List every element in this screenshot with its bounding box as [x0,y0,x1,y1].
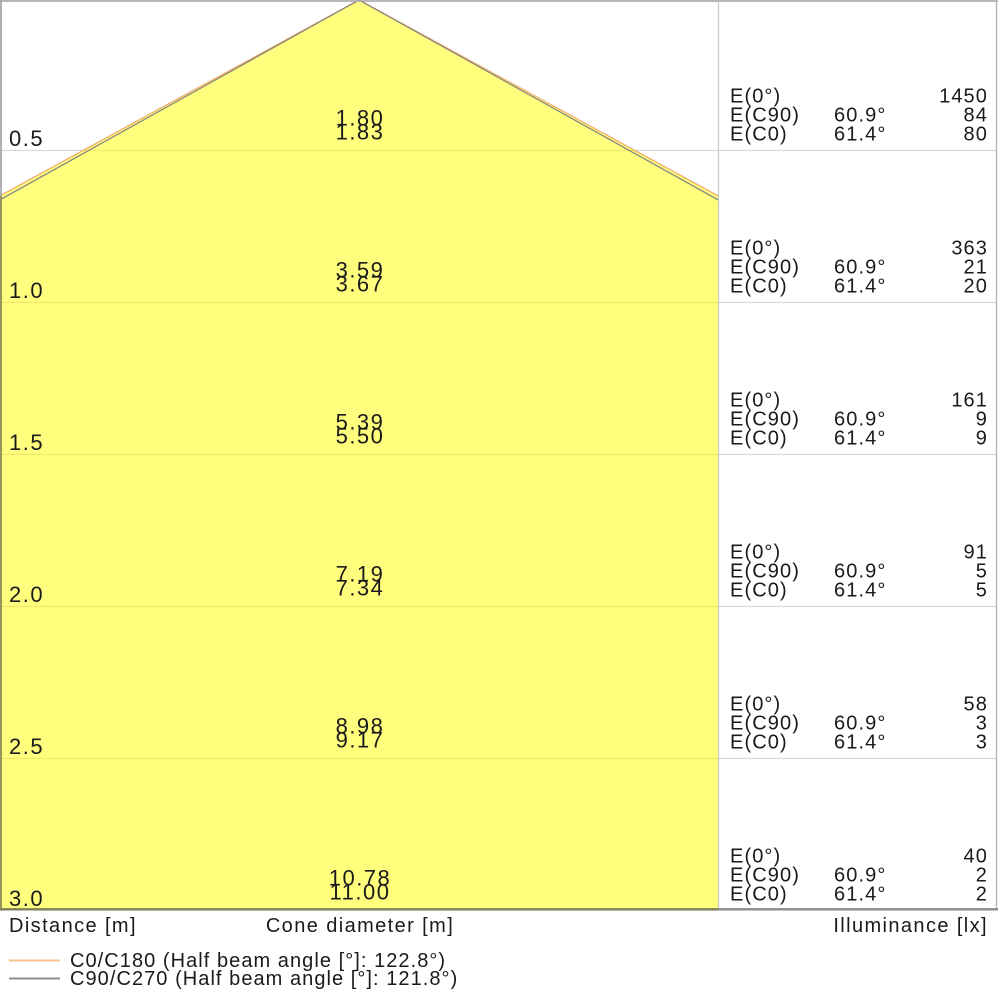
svg-text:20: 20 [964,276,988,298]
svg-text:61.4°: 61.4° [834,884,886,906]
svg-text:E(C0): E(C0) [730,884,788,906]
svg-text:61.4°: 61.4° [834,276,886,298]
svg-text:9.17: 9.17 [336,728,385,753]
svg-text:7.34: 7.34 [336,576,385,601]
svg-text:E(C0): E(C0) [730,732,788,754]
svg-text:11.00: 11.00 [330,880,391,905]
svg-text:3.0: 3.0 [9,886,44,911]
svg-text:61.4°: 61.4° [834,580,886,602]
svg-text:E(C0): E(C0) [730,580,788,602]
svg-text:1.0: 1.0 [9,278,44,303]
svg-text:E(C0): E(C0) [730,124,788,146]
svg-text:E(C0): E(C0) [730,428,788,450]
svg-text:9: 9 [976,428,988,450]
svg-text:2.0: 2.0 [9,582,44,607]
svg-text:61.4°: 61.4° [834,732,886,754]
svg-text:Cone diameter [m]: Cone diameter [m] [266,915,454,937]
svg-text:61.4°: 61.4° [834,428,886,450]
svg-text:3.67: 3.67 [336,272,385,297]
svg-text:2: 2 [976,884,988,906]
svg-text:1.5: 1.5 [9,430,44,455]
svg-text:0.5: 0.5 [9,126,44,151]
svg-text:Distance [m]: Distance [m] [9,915,137,937]
svg-text:61.4°: 61.4° [834,124,886,146]
svg-text:2.5: 2.5 [9,734,44,759]
svg-text:5.50: 5.50 [336,424,385,449]
svg-text:E(C0): E(C0) [730,276,788,298]
svg-text:3: 3 [976,732,988,754]
svg-text:80: 80 [964,124,988,146]
svg-text:C90/C270 (Half beam angle [°]:: C90/C270 (Half beam angle [°]: 121.8°) [70,968,458,990]
svg-text:Illuminance [lx]: Illuminance [lx] [833,915,988,937]
svg-text:5: 5 [976,580,988,602]
svg-text:1.83: 1.83 [336,120,385,145]
